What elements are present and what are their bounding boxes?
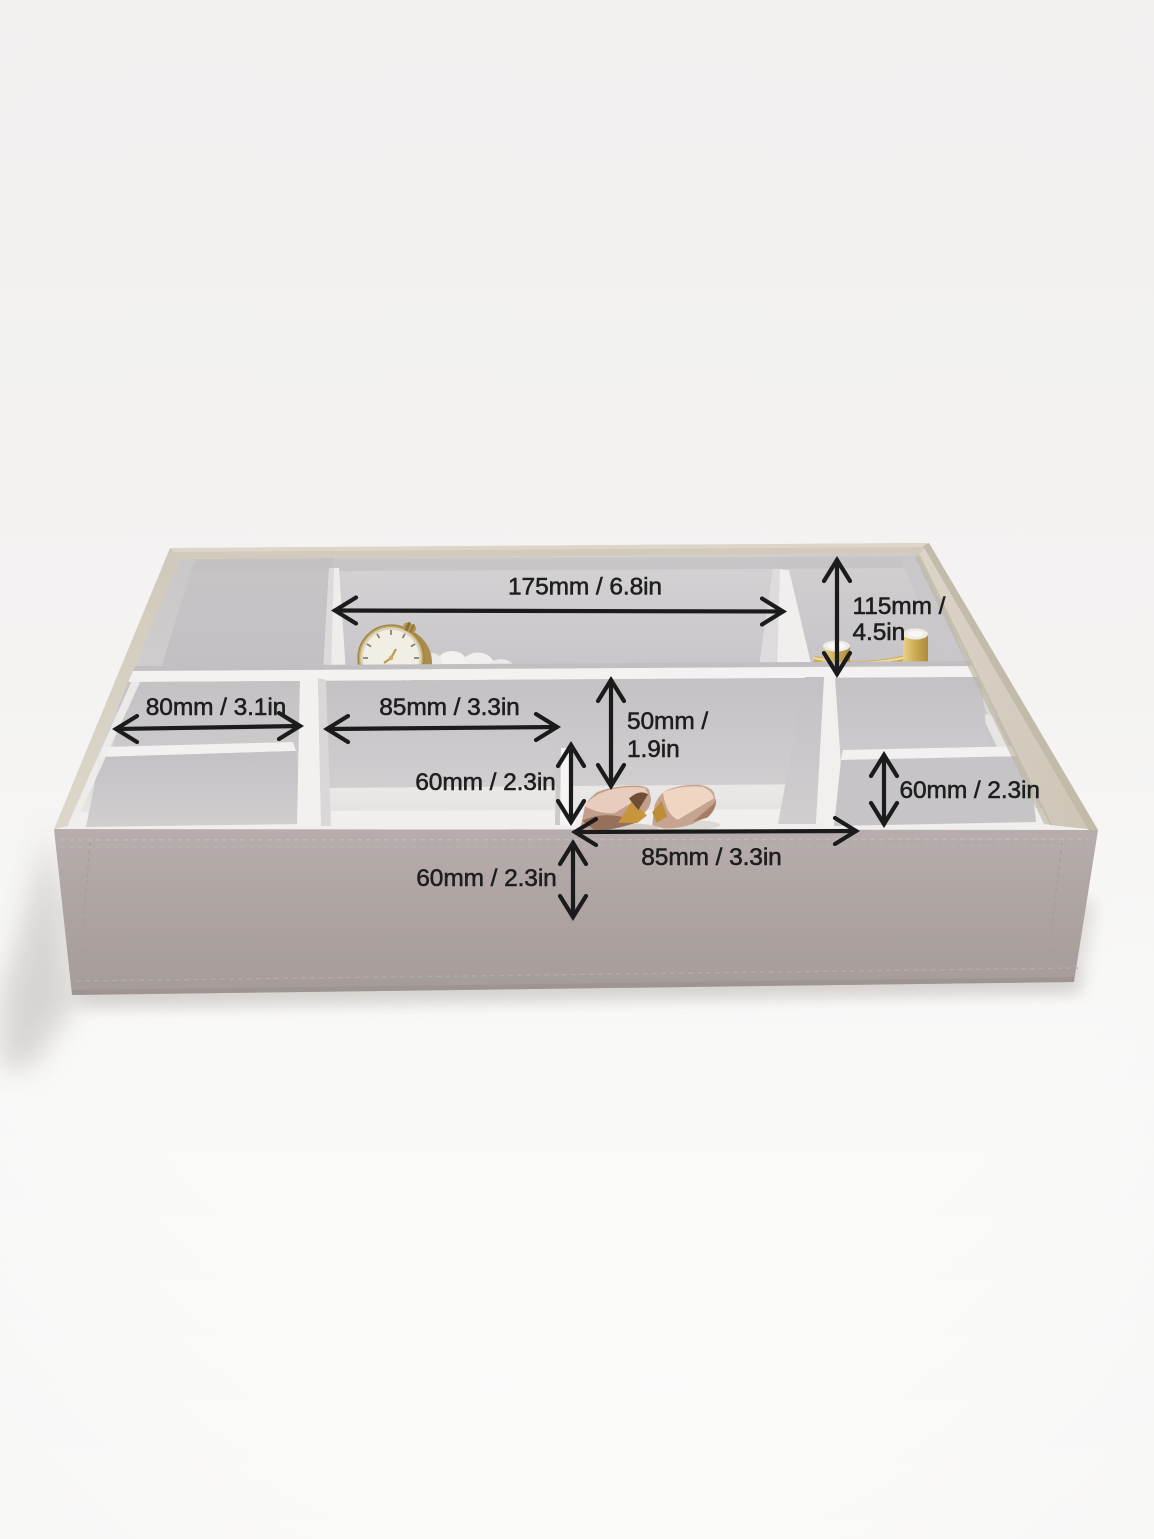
svg-text:85mm / 3.3in: 85mm / 3.3in [641,844,781,871]
svg-text:80mm / 3.1in: 80mm / 3.1in [146,694,286,721]
svg-text:1.9in: 1.9in [627,736,680,763]
svg-text:60mm / 2.3in: 60mm / 2.3in [415,769,555,796]
svg-text:175mm / 6.8in: 175mm / 6.8in [508,574,662,601]
svg-text:50mm /: 50mm / [627,708,708,735]
svg-text:85mm / 3.3in: 85mm / 3.3in [379,694,519,721]
svg-text:4.5in: 4.5in [853,619,906,646]
svg-text:60mm / 2.3in: 60mm / 2.3in [416,865,556,892]
svg-text:60mm / 2.3in: 60mm / 2.3in [900,777,1040,804]
svg-text:115mm /: 115mm / [853,593,946,620]
